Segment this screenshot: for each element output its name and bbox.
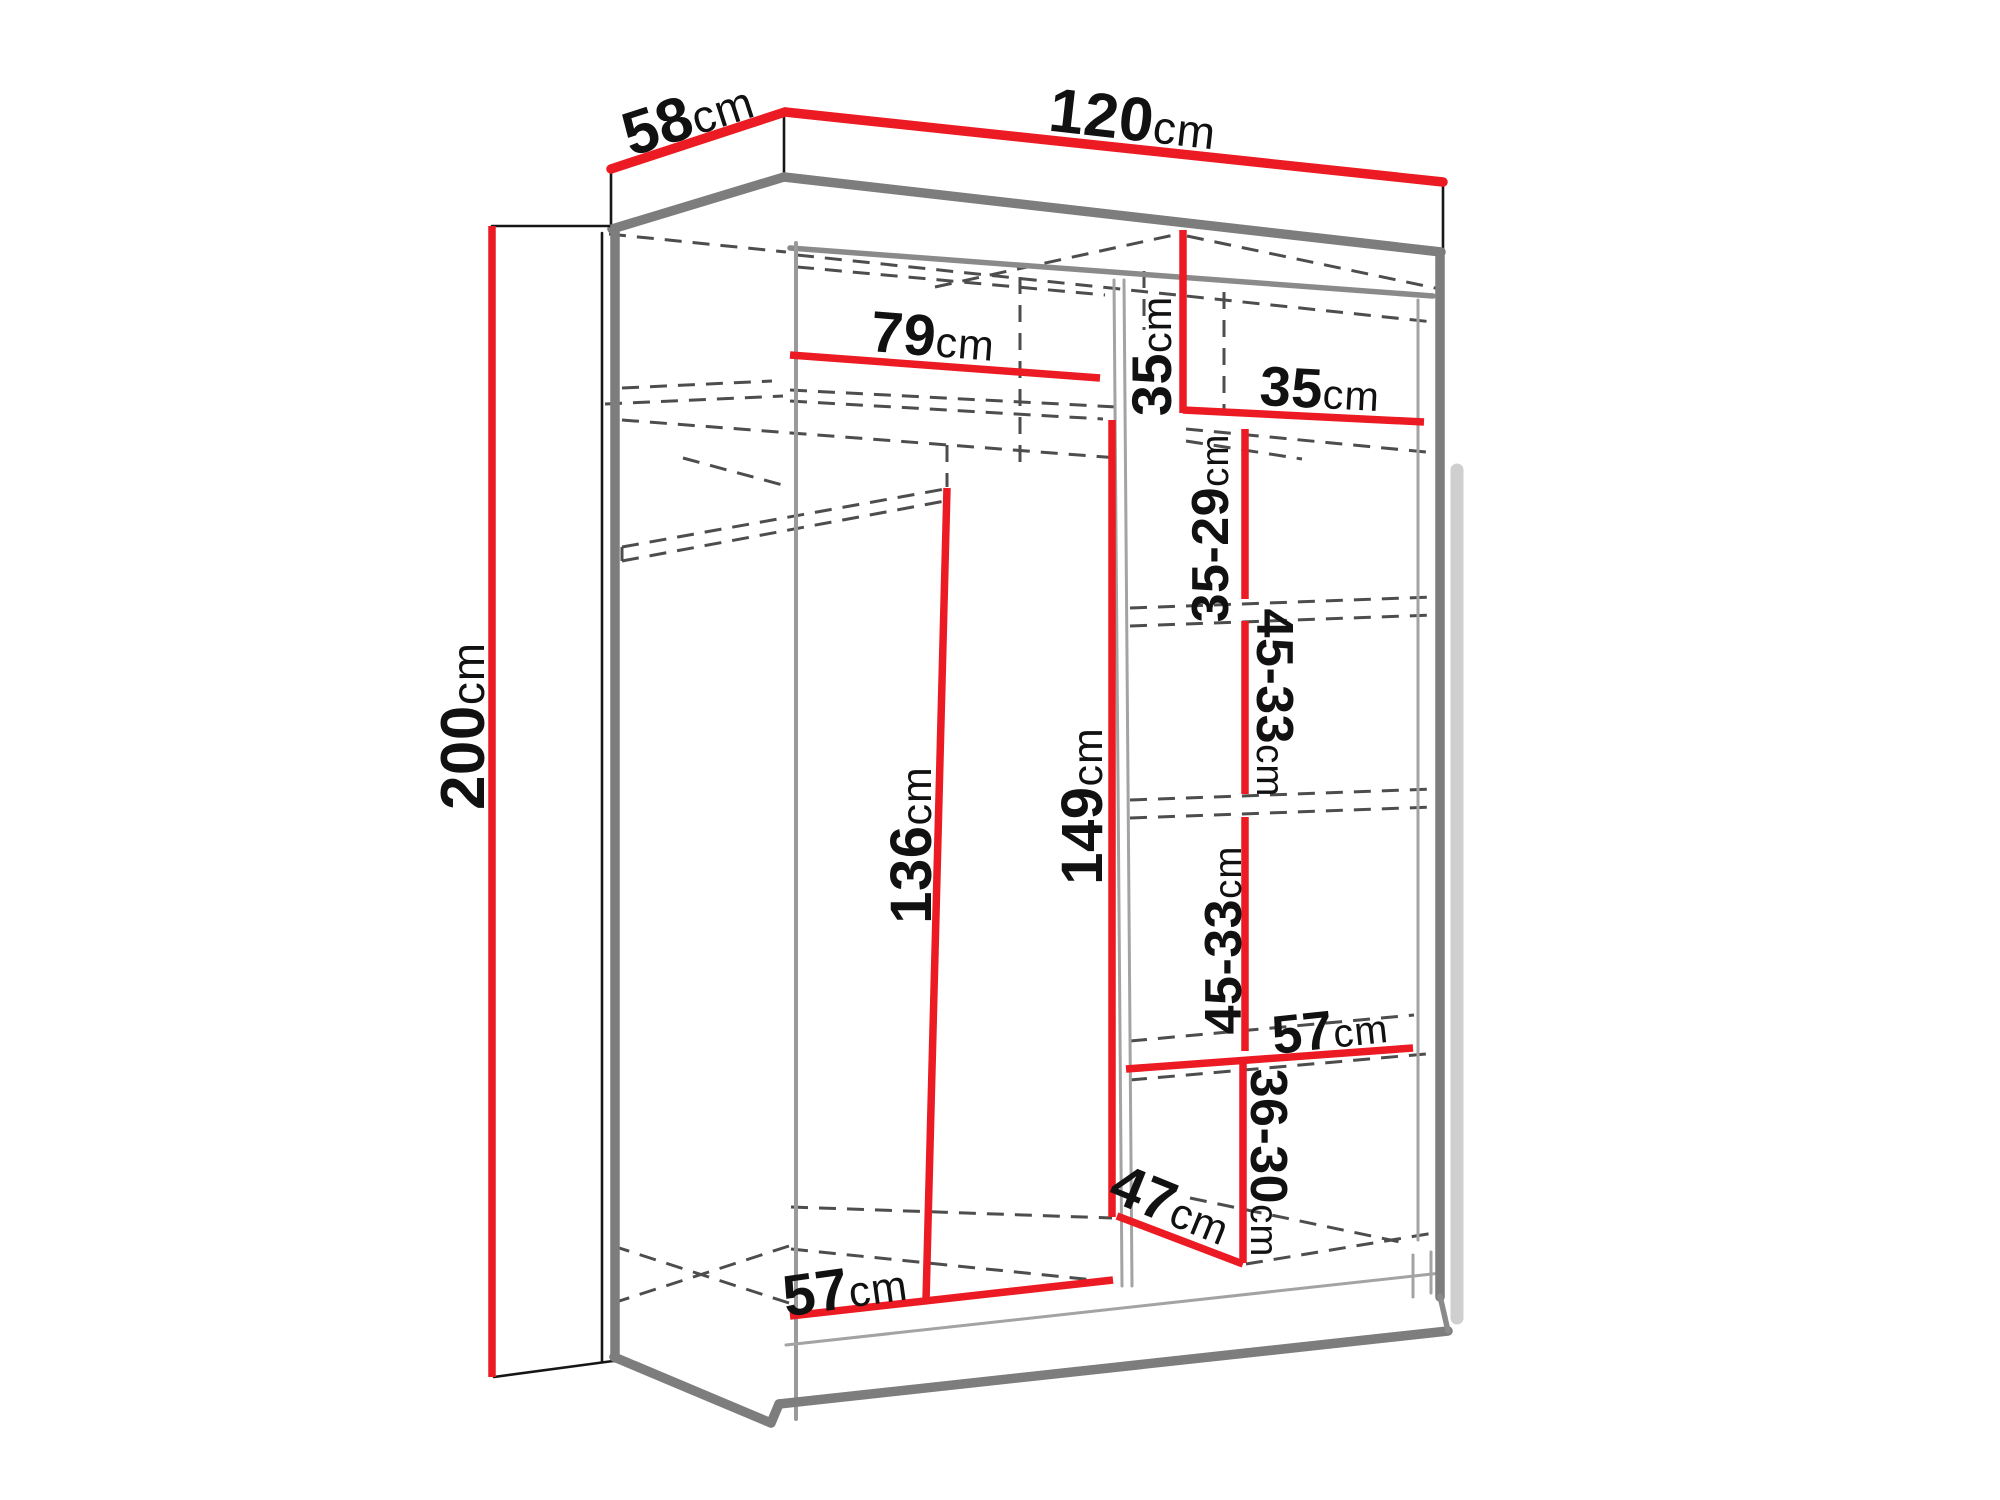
dim-value: 35 — [1120, 353, 1183, 416]
dim-value: 79 — [868, 299, 938, 369]
dim-unit: cm — [1150, 101, 1219, 160]
wardrobe-dimension-diagram: 58cm120cm200cm79cm35cm35cm35-29cm45-33cm… — [0, 0, 2000, 1500]
dim-value: 57 — [779, 1256, 853, 1329]
dim-value: 45-33 — [1245, 609, 1303, 745]
dim-unit: cm — [1331, 1007, 1391, 1057]
dim-value: 200 — [429, 705, 498, 810]
dim-label-gap-36-30: 36-30cm — [1242, 1069, 1294, 1258]
dim-value: 57 — [1269, 1000, 1336, 1066]
dim-value: 136 — [879, 825, 944, 923]
dim-value: 35 — [1258, 354, 1325, 420]
dim-unit: cm — [1248, 744, 1291, 797]
dim-unit: cm — [934, 318, 997, 370]
dim-label-cubby-width-35: 35cm — [1258, 358, 1381, 420]
dim-unit: cm — [1242, 1204, 1285, 1257]
dim-label-cubby-height-35: 35cm — [1124, 296, 1180, 417]
dim-unit: cm — [1194, 434, 1237, 487]
dim-value: 120 — [1046, 76, 1158, 156]
wardrobe-line-art — [0, 0, 2000, 1500]
dim-label-gap-45-33-b: 45-33cm — [1198, 846, 1250, 1035]
dim-label-height-200: 200cm — [433, 642, 495, 810]
dim-unit: cm — [845, 1262, 910, 1318]
dim-value: 149 — [1050, 786, 1115, 884]
dim-label-gap-45-33-a: 45-33cm — [1248, 609, 1300, 798]
dim-unit: cm — [1207, 846, 1250, 899]
dim-label-hanging-149: 149cm — [1054, 727, 1112, 884]
dim-value: 45-33 — [1195, 899, 1253, 1035]
dim-label-gap-35-29: 35-29cm — [1185, 434, 1237, 623]
dim-unit: cm — [1064, 727, 1112, 786]
dim-label-hanging-136: 136cm — [883, 766, 941, 923]
dim-unit: cm — [442, 642, 494, 705]
dim-label-shelf-79: 79cm — [869, 303, 998, 371]
dim-value: 35-29 — [1182, 487, 1240, 623]
dim-unit: cm — [1133, 296, 1180, 353]
dim-unit: cm — [1322, 370, 1382, 420]
dim-unit: cm — [893, 766, 941, 825]
dim-value: 36-30 — [1239, 1069, 1297, 1205]
